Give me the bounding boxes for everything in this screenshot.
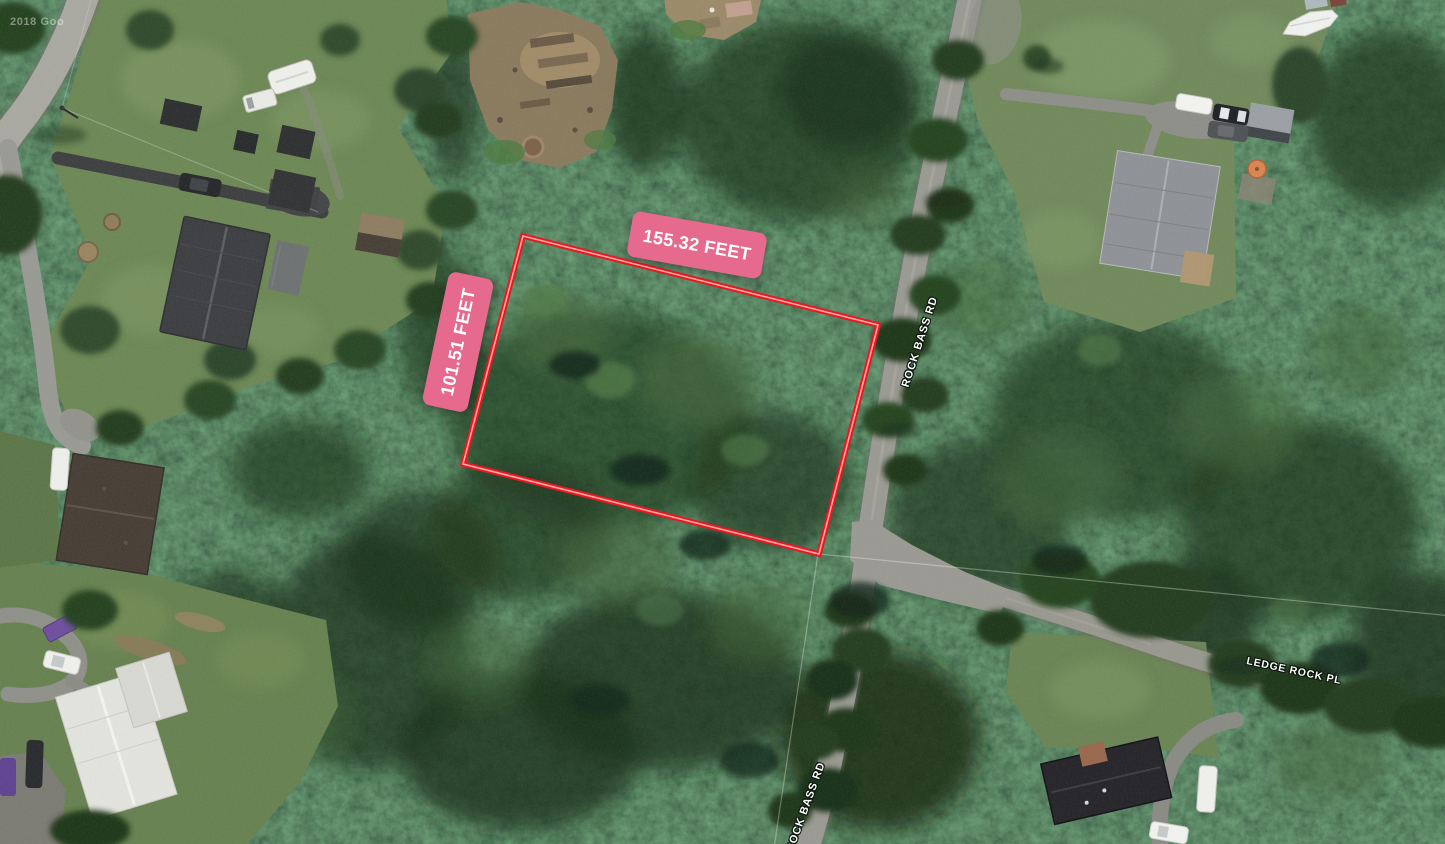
satellite-map[interactable]: 2018 Goo ROCK BASS RD ROCK BASS RD LEDGE… xyxy=(0,0,1445,844)
photo-grain xyxy=(0,0,1445,844)
satellite-map-canvas xyxy=(0,0,1445,844)
